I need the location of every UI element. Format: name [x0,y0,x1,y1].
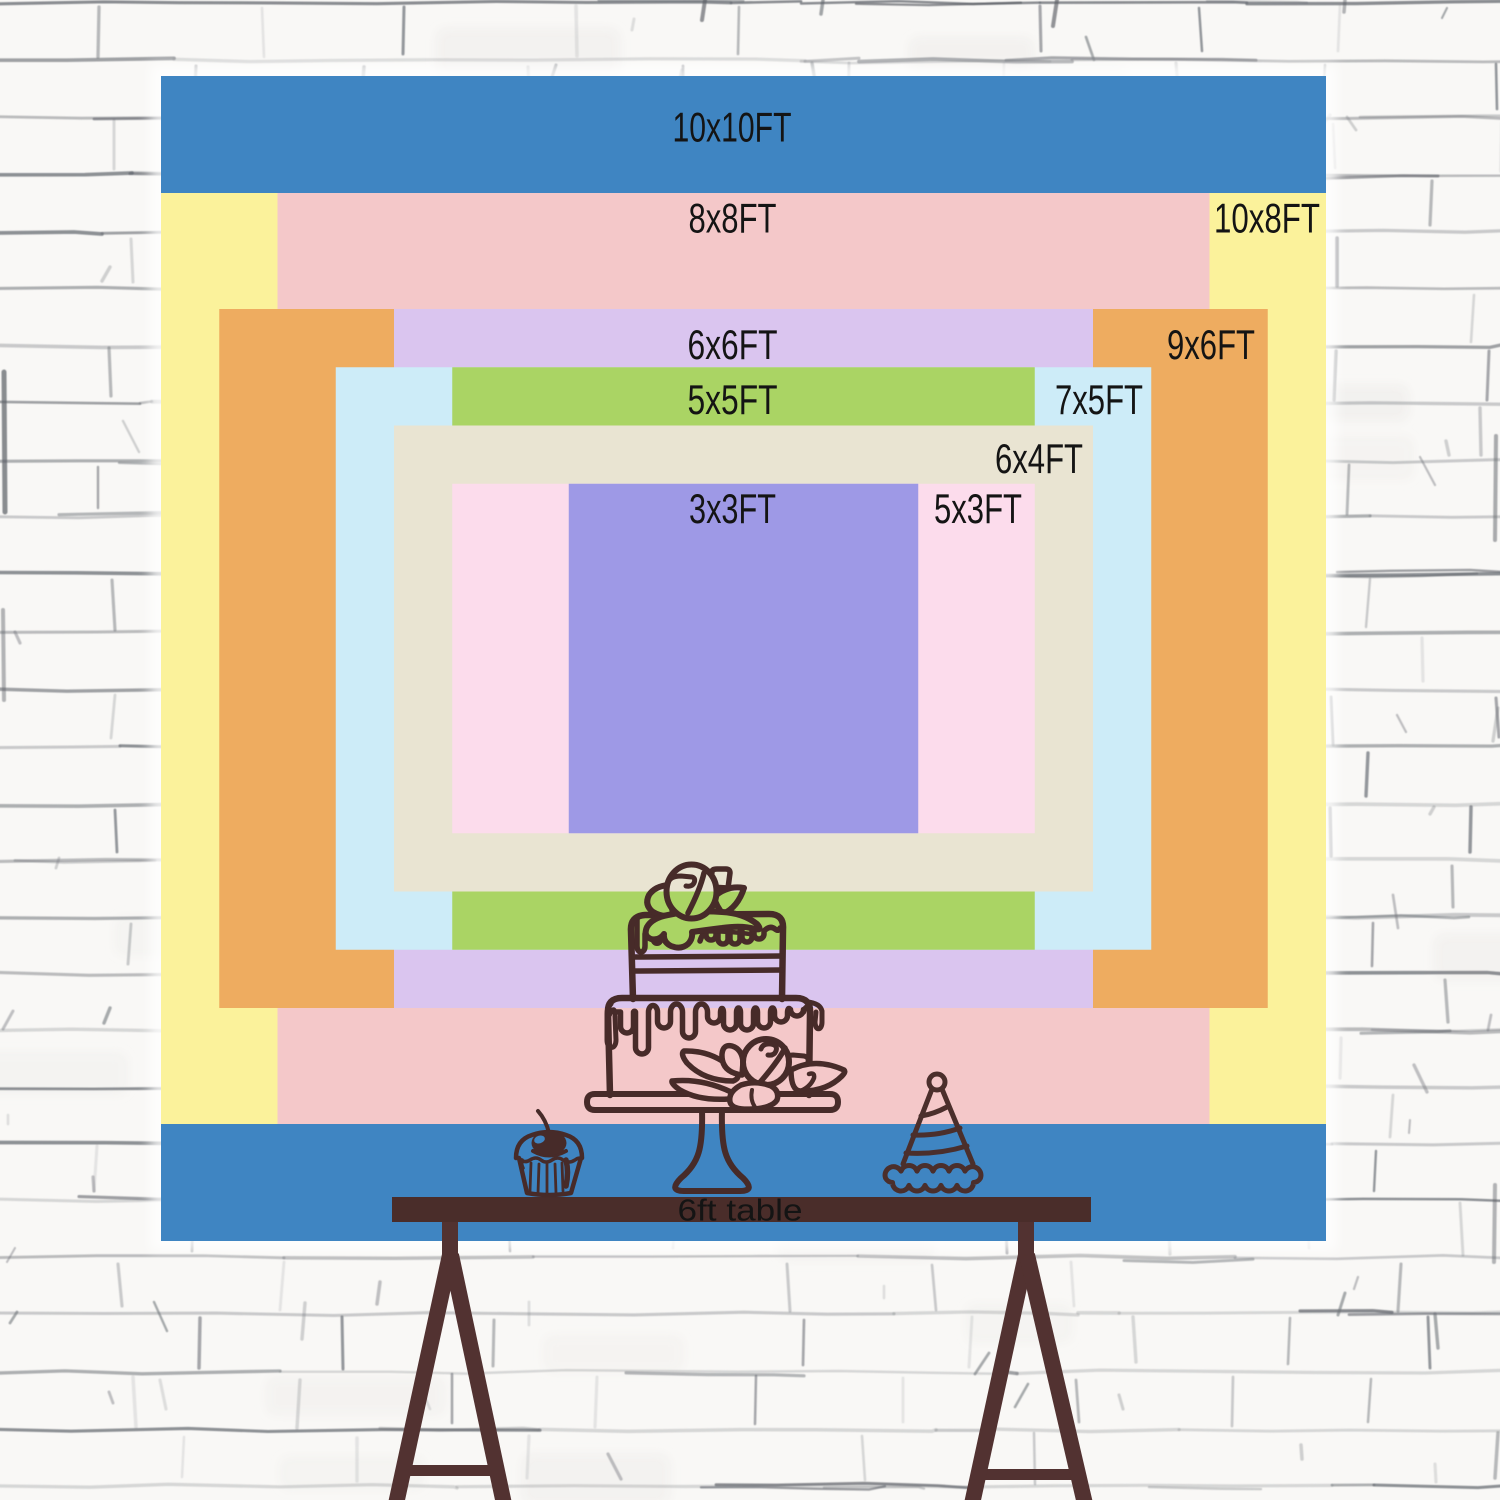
svg-text:9x6FT: 9x6FT [1167,321,1255,368]
svg-text:6x4FT: 6x4FT [995,435,1083,482]
svg-text:5x3FT: 5x3FT [934,485,1022,532]
svg-text:10x8FT: 10x8FT [1214,195,1320,242]
svg-text:7x5FT: 7x5FT [1055,376,1143,423]
svg-text:6ft table: 6ft table [678,1193,803,1228]
svg-text:10x10FT: 10x10FT [673,104,792,151]
svg-text:8x8FT: 8x8FT [689,195,777,242]
svg-text:6x6FT: 6x6FT [688,321,778,368]
svg-text:3x3FT: 3x3FT [689,485,776,532]
svg-text:5x5FT: 5x5FT [688,376,778,423]
